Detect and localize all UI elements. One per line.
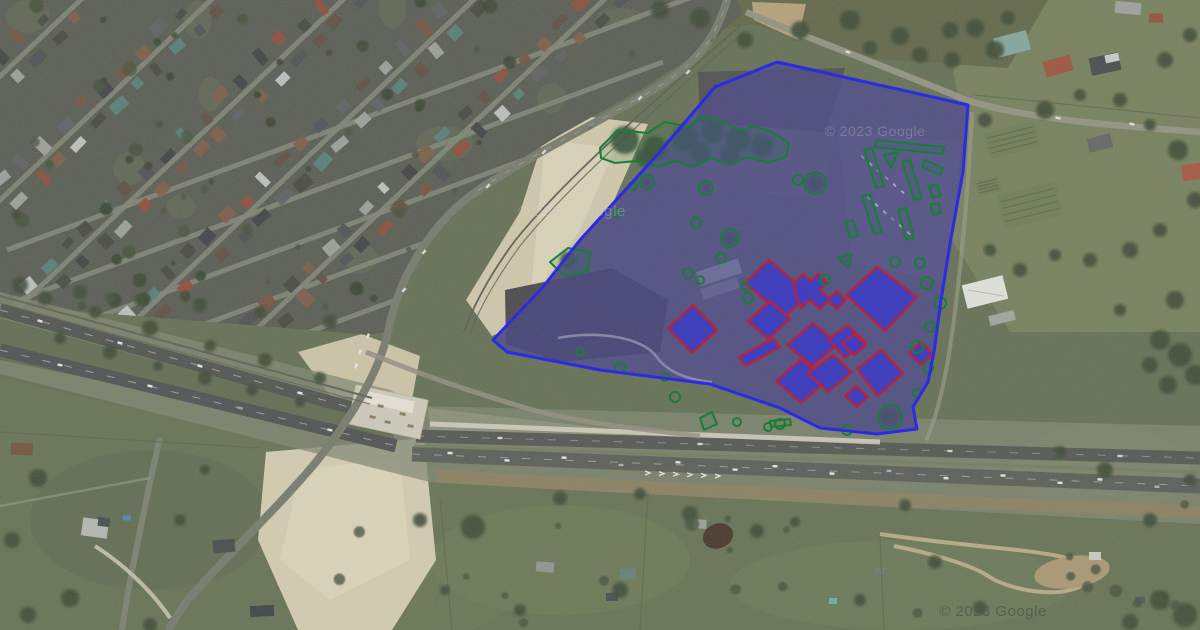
map-screenshot: © 2023 Google© 2023 Google© 2023 Google [0, 0, 1200, 630]
map-attribution: © 2023 Google [825, 123, 926, 139]
map-attribution: © 2023 Google [518, 203, 626, 220]
tree-annotation [770, 419, 791, 427]
satellite-map[interactable]: © 2023 Google© 2023 Google© 2023 Google [0, 0, 1200, 630]
map-attribution: © 2023 Google [939, 603, 1047, 620]
tree-annotation [930, 203, 941, 215]
